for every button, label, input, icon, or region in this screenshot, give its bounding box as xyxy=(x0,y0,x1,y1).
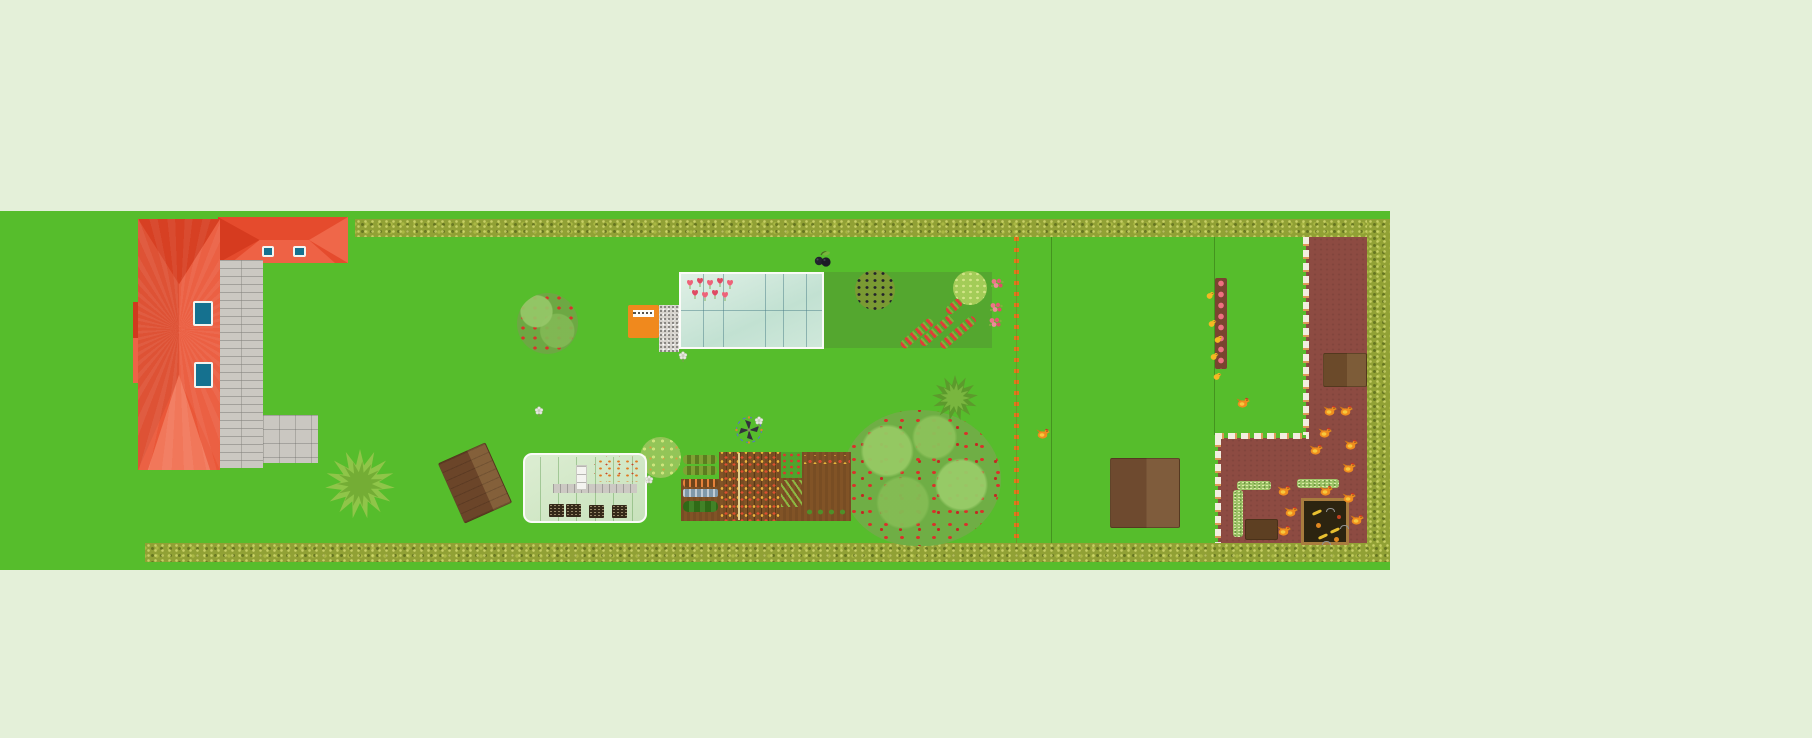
compost-scrap xyxy=(1322,541,1331,545)
greenhouse-path xyxy=(553,484,637,493)
hedge-top[interactable] xyxy=(355,219,1390,237)
white-flower-icon[interactable] xyxy=(534,403,544,422)
house-main-roof[interactable] xyxy=(138,219,220,470)
hen-icon[interactable] xyxy=(1236,394,1250,413)
compost-scrap xyxy=(1312,509,1322,516)
boundary-line-1[interactable] xyxy=(1051,237,1052,543)
skylight-window[interactable] xyxy=(193,301,213,326)
orange-storage-box[interactable] xyxy=(628,305,659,338)
white-flower-icon[interactable] xyxy=(754,413,764,432)
chick-icon[interactable] xyxy=(1206,285,1215,304)
crop-row-orange xyxy=(683,479,718,487)
rose-cluster-icon[interactable] xyxy=(990,276,1005,295)
grape-plant-icon[interactable] xyxy=(813,249,833,273)
hen-icon[interactable] xyxy=(1277,522,1291,541)
walkway[interactable] xyxy=(220,260,263,468)
spiky-bush[interactable] xyxy=(325,449,395,523)
crop-row-dark-green xyxy=(683,501,718,512)
chick-icon[interactable] xyxy=(1210,346,1219,365)
hen-icon[interactable] xyxy=(1323,402,1337,421)
hedge-right[interactable] xyxy=(1367,219,1390,562)
house-wing-roof[interactable] xyxy=(218,217,348,263)
compost-scrap xyxy=(1334,537,1339,542)
greenhouse-small[interactable] xyxy=(523,453,647,523)
bed-divider xyxy=(738,453,740,520)
blackcurrant-tree[interactable] xyxy=(855,270,895,310)
leafy-crop-row xyxy=(683,455,717,464)
grass-strip[interactable] xyxy=(1233,490,1243,537)
wood-box[interactable] xyxy=(1245,519,1278,540)
dashed-fence-horizontal[interactable] xyxy=(1215,433,1309,439)
squash-row xyxy=(804,507,850,517)
potted-plants xyxy=(594,456,639,482)
compost-scrap xyxy=(1318,533,1328,540)
chicken-coop[interactable] xyxy=(1323,353,1367,387)
hen-icon[interactable] xyxy=(1036,425,1050,444)
seedling-rows xyxy=(781,480,802,507)
chick-icon[interactable] xyxy=(1213,366,1222,385)
compost-scrap xyxy=(1330,527,1340,534)
garden-plan-canvas xyxy=(0,0,1812,738)
vegetable-garden[interactable] xyxy=(681,452,851,521)
gravel-pad[interactable] xyxy=(659,305,679,352)
white-flower-icon[interactable] xyxy=(678,348,688,367)
hen-icon[interactable] xyxy=(1284,503,1298,522)
patio[interactable] xyxy=(263,415,318,463)
rose-cluster-icon[interactable] xyxy=(988,315,1003,334)
hen-icon[interactable] xyxy=(1342,459,1356,478)
orange-post-fence[interactable] xyxy=(1014,237,1019,543)
hen-icon[interactable] xyxy=(1344,436,1358,455)
hen-icon[interactable] xyxy=(1309,441,1323,460)
crop-columns xyxy=(720,452,780,521)
row-line xyxy=(540,457,541,521)
compost-scrap xyxy=(1337,515,1341,519)
skylight-window[interactable] xyxy=(194,362,213,388)
crop-row-spaced xyxy=(804,455,850,464)
storage-shed[interactable] xyxy=(1110,458,1180,528)
strawberry-patch xyxy=(781,452,802,478)
seed-tray[interactable] xyxy=(589,505,604,518)
dashed-fence-vertical-1[interactable] xyxy=(1303,237,1309,435)
apple-tree[interactable] xyxy=(517,293,578,354)
seed-tray[interactable] xyxy=(612,505,627,518)
shelf-stack xyxy=(576,465,587,490)
roof-shading xyxy=(138,219,220,470)
tulip-icon[interactable] xyxy=(691,285,699,304)
greenhouse-glazing-bar xyxy=(681,310,822,311)
skylight-window[interactable] xyxy=(262,246,274,257)
skylight-window[interactable] xyxy=(293,246,306,257)
compost-scrap xyxy=(1340,525,1349,529)
white-flower-icon[interactable] xyxy=(644,472,654,491)
leafy-crop-row xyxy=(683,466,717,475)
hedge-bottom[interactable] xyxy=(145,543,1390,562)
seed-tray[interactable] xyxy=(549,504,564,517)
seed-tray[interactable] xyxy=(566,504,581,517)
grass-strip[interactable] xyxy=(1237,481,1271,490)
tulip-icon[interactable] xyxy=(721,287,729,306)
tulip-icon[interactable] xyxy=(701,287,709,306)
big-apple-tree[interactable] xyxy=(843,410,1001,546)
tulip-icon[interactable] xyxy=(711,285,719,304)
dashed-fence-vertical-2[interactable] xyxy=(1215,438,1221,543)
box-label xyxy=(633,310,654,317)
hen-icon[interactable] xyxy=(1339,402,1353,421)
hen-icon[interactable] xyxy=(1319,482,1333,501)
hen-icon[interactable] xyxy=(1277,482,1291,501)
spiky-bush[interactable] xyxy=(932,375,978,425)
compost-scrap xyxy=(1316,523,1321,528)
hen-icon[interactable] xyxy=(1350,511,1364,530)
compost-scrap xyxy=(1326,508,1335,512)
crop-row-blue xyxy=(683,489,718,497)
hen-icon[interactable] xyxy=(1342,489,1356,508)
